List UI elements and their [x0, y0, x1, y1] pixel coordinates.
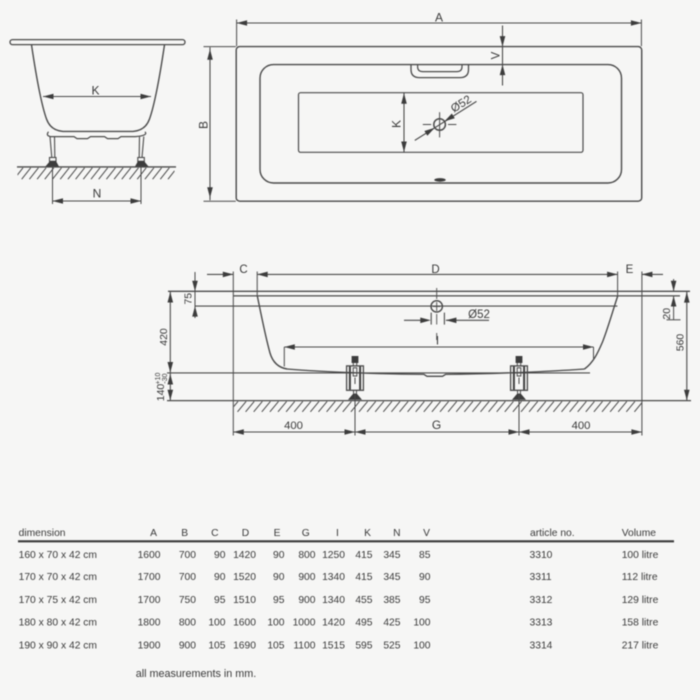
svg-text:N: N	[393, 528, 400, 539]
svg-text:article no.: article no.	[530, 528, 575, 539]
svg-text:A: A	[150, 528, 157, 539]
svg-text:420: 420	[158, 328, 170, 346]
svg-text:345: 345	[383, 572, 400, 583]
svg-text:75: 75	[183, 293, 195, 305]
svg-text:K: K	[364, 528, 371, 539]
svg-text:140: 140	[155, 384, 167, 402]
svg-text:1100: 1100	[293, 641, 315, 652]
svg-text:-30: -30	[162, 373, 169, 383]
svg-text:G: G	[432, 418, 441, 432]
svg-text:D: D	[242, 528, 249, 539]
svg-text:750: 750	[179, 595, 196, 606]
svg-text:E: E	[274, 528, 281, 539]
svg-text:D: D	[431, 264, 439, 276]
svg-text:100 litre: 100 litre	[622, 550, 659, 561]
svg-text:112 litre: 112 litre	[622, 572, 658, 583]
svg-text:1510: 1510	[233, 595, 256, 606]
svg-text:1250: 1250	[322, 550, 345, 561]
svg-text:85: 85	[419, 550, 431, 561]
svg-text:95: 95	[419, 595, 431, 606]
svg-text:700: 700	[179, 572, 196, 583]
svg-text:158 litre: 158 litre	[622, 618, 659, 629]
svg-text:C: C	[239, 264, 247, 276]
svg-text:B: B	[181, 528, 188, 539]
svg-text:900: 900	[298, 595, 315, 606]
svg-text:170 x 75 x 42 cm: 170 x 75 x 42 cm	[19, 595, 97, 606]
svg-text:90: 90	[214, 550, 226, 561]
svg-text:400: 400	[284, 420, 303, 432]
svg-text:90: 90	[214, 572, 226, 583]
svg-text:800: 800	[298, 550, 315, 561]
svg-text:K: K	[390, 120, 404, 128]
svg-text:90: 90	[273, 550, 285, 561]
svg-text:180 x 80 x 42 cm: 180 x 80 x 42 cm	[19, 618, 97, 629]
svg-text:525: 525	[383, 641, 400, 652]
svg-text:129 litre: 129 litre	[622, 595, 659, 606]
svg-text:K: K	[91, 83, 99, 97]
svg-text:G: G	[302, 528, 310, 539]
svg-text:415: 415	[355, 572, 372, 583]
svg-text:1600: 1600	[138, 550, 161, 561]
svg-text:560: 560	[674, 334, 686, 352]
svg-text:1340: 1340	[322, 572, 345, 583]
svg-text:+10: +10	[155, 372, 162, 384]
svg-text:105: 105	[208, 641, 225, 652]
svg-text:20: 20	[661, 308, 673, 320]
svg-text:900: 900	[179, 641, 196, 652]
svg-text:385: 385	[383, 595, 400, 606]
svg-text:all measurements in mm.: all measurements in mm.	[136, 668, 257, 680]
svg-text:100: 100	[413, 618, 430, 629]
svg-text:Ø52: Ø52	[468, 309, 490, 321]
svg-text:105: 105	[267, 641, 284, 652]
svg-text:V: V	[423, 528, 430, 539]
svg-text:170 x 70 x 42 cm: 170 x 70 x 42 cm	[19, 572, 97, 583]
svg-text:345: 345	[383, 550, 400, 561]
svg-text:3312: 3312	[530, 595, 553, 606]
svg-text:1900: 1900	[138, 641, 161, 652]
svg-text:1420: 1420	[233, 550, 256, 561]
svg-text:1700: 1700	[138, 595, 161, 606]
svg-text:100: 100	[208, 618, 225, 629]
svg-text:dimension: dimension	[19, 528, 66, 539]
svg-text:3314: 3314	[530, 641, 553, 652]
svg-text:455: 455	[355, 595, 372, 606]
svg-text:N: N	[93, 187, 102, 201]
svg-text:Ø52: Ø52	[449, 94, 474, 116]
svg-text:I: I	[436, 336, 439, 348]
svg-text:1515: 1515	[322, 641, 345, 652]
svg-text:1690: 1690	[233, 641, 256, 652]
svg-text:90: 90	[419, 572, 431, 583]
svg-text:A: A	[435, 11, 443, 25]
svg-text:495: 495	[355, 618, 372, 629]
svg-text:217 litre: 217 litre	[622, 641, 659, 652]
svg-text:1600: 1600	[233, 618, 256, 629]
svg-text:3311: 3311	[530, 572, 552, 583]
svg-text:Volume: Volume	[622, 528, 657, 539]
svg-text:800: 800	[179, 618, 196, 629]
svg-text:1420: 1420	[322, 618, 345, 629]
svg-text:1520: 1520	[233, 572, 256, 583]
svg-text:95: 95	[273, 595, 285, 606]
svg-text:160 x 70 x 42 cm: 160 x 70 x 42 cm	[19, 550, 97, 561]
svg-text:100: 100	[267, 618, 284, 629]
svg-text:3310: 3310	[530, 550, 553, 561]
svg-text:90: 90	[273, 572, 285, 583]
svg-text:595: 595	[355, 641, 372, 652]
svg-text:900: 900	[298, 572, 315, 583]
svg-text:B: B	[197, 121, 211, 129]
svg-text:C: C	[211, 528, 219, 539]
svg-text:E: E	[626, 264, 634, 276]
svg-text:1340: 1340	[322, 595, 345, 606]
svg-text:700: 700	[179, 550, 196, 561]
svg-text:100: 100	[413, 641, 430, 652]
svg-text:190 x 90 x 42 cm: 190 x 90 x 42 cm	[19, 641, 97, 652]
svg-text:I: I	[336, 528, 339, 539]
svg-text:1700: 1700	[138, 572, 161, 583]
svg-text:1000: 1000	[293, 618, 316, 629]
svg-text:V: V	[491, 51, 503, 59]
svg-text:400: 400	[572, 420, 591, 432]
svg-text:1800: 1800	[138, 618, 161, 629]
svg-text:425: 425	[383, 618, 400, 629]
svg-text:95: 95	[214, 595, 226, 606]
svg-text:3313: 3313	[530, 618, 553, 629]
svg-text:415: 415	[355, 550, 372, 561]
